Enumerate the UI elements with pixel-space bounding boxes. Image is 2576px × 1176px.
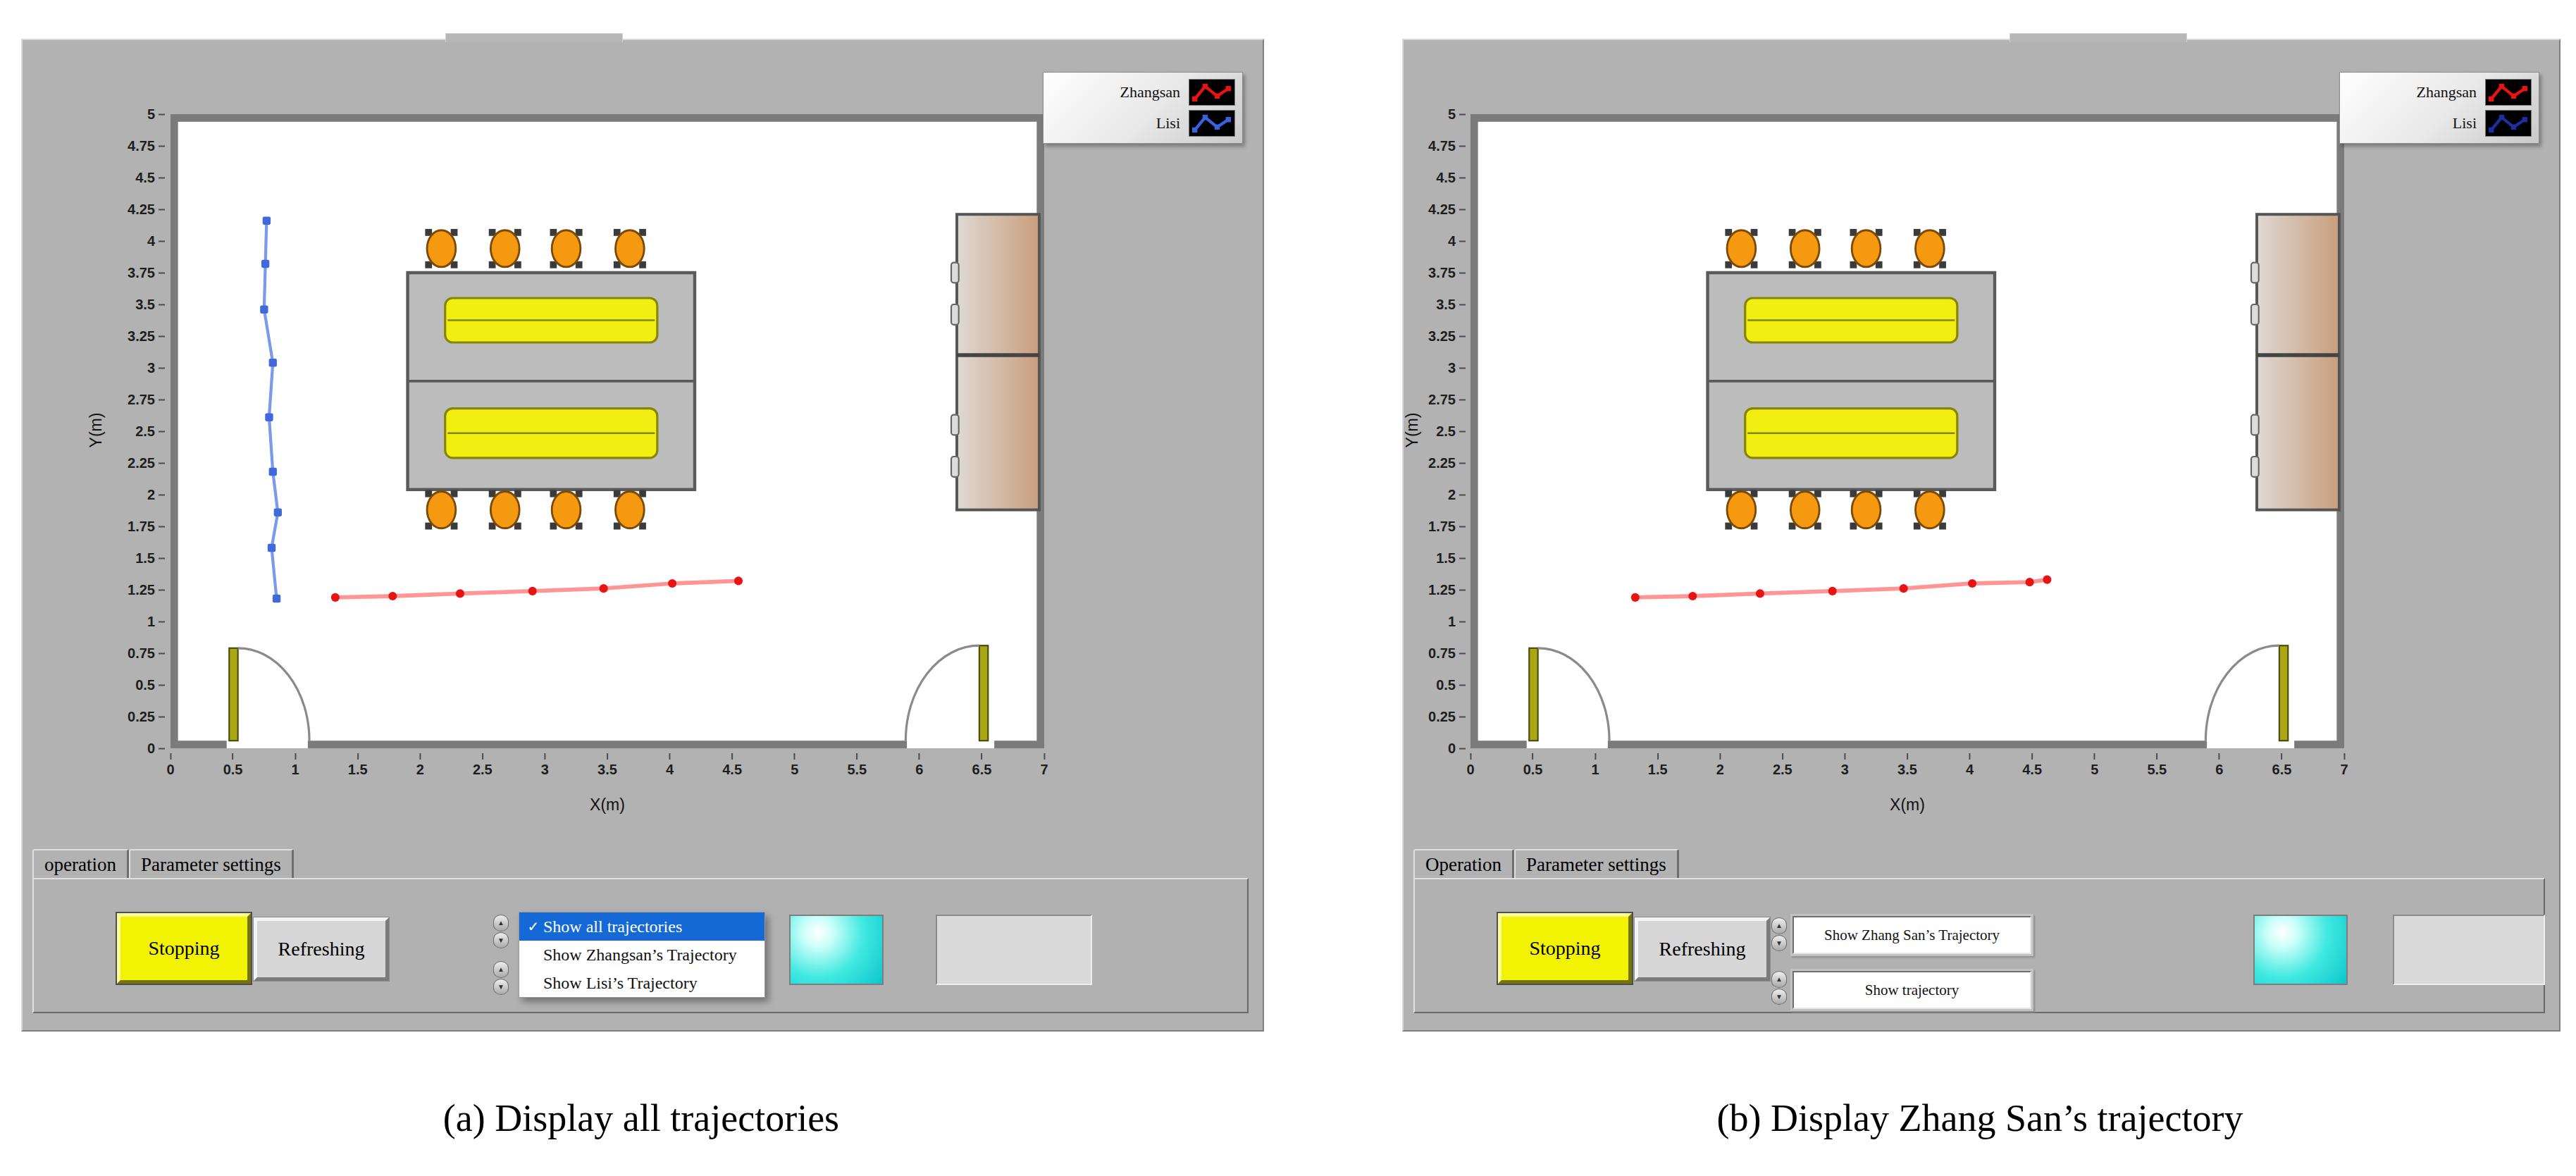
y-tick: 5 — [116, 106, 165, 123]
tab-operation[interactable]: operation — [32, 849, 129, 879]
menu-item-show-zhangsan-trajectory[interactable]: Show Zhangsan’s Trajectory — [519, 941, 764, 969]
x-tick: 6 — [2215, 753, 2223, 778]
x-tick: 1.5 — [1648, 753, 1668, 778]
y-tick: 1.75 — [1416, 519, 1466, 535]
figure-page: Y(m) 00.250.50.7511.251.51.7522.252.52.7… — [0, 0, 2576, 1176]
y-tick: 4 — [116, 233, 165, 249]
y-tick: 3.25 — [116, 328, 165, 345]
x-tick: 3.5 — [1897, 753, 1917, 778]
y-tick: 0.25 — [116, 709, 165, 725]
y-tick: 3.75 — [116, 265, 165, 281]
legend-label: Zhangsan — [1120, 83, 1180, 101]
value-display-box — [2393, 915, 2545, 985]
tab-parameter-settings[interactable]: Parameter settings — [129, 849, 294, 879]
y-tick: 0.5 — [116, 677, 165, 693]
x-tick: 0.5 — [223, 753, 243, 778]
trajectory-icon — [1189, 110, 1235, 137]
x-tick: 7 — [2340, 753, 2348, 778]
caption-a: (a) Display all trajectories — [21, 1096, 1261, 1140]
y-tick: 2.5 — [1416, 423, 1466, 440]
y-tick: 3.75 — [1416, 265, 1466, 281]
y-tick: 1 — [1416, 614, 1466, 630]
trajectory-spinner-1[interactable]: ▲ ▼ — [1771, 917, 1787, 951]
x-tick: 6.5 — [972, 753, 992, 778]
legend-item-zhangsan[interactable]: Zhangsan — [1051, 77, 1235, 108]
window-notch — [445, 33, 623, 42]
x-tick: 0 — [166, 753, 174, 778]
x-tick: 1.5 — [348, 753, 368, 778]
y-tick: 2 — [116, 487, 165, 503]
increment-arrow-icon[interactable]: ▲ — [493, 915, 509, 931]
tab-strip: Operation Parameter settings — [1413, 849, 1679, 879]
trajectory-icon — [2485, 110, 2532, 137]
x-axis-ticks: 00.511.522.533.544.555.566.57 — [171, 753, 1044, 796]
y-tick: 2.25 — [116, 455, 165, 471]
x-tick: 0.5 — [1523, 753, 1543, 778]
y-tick: 1.5 — [1416, 550, 1466, 567]
y-tick: 2.75 — [1416, 392, 1466, 408]
check-icon: ✓ — [524, 918, 543, 935]
x-tick: 1 — [292, 753, 299, 778]
x-tick: 4.5 — [722, 753, 742, 778]
y-tick: 3 — [116, 360, 165, 376]
tab-parameter-settings[interactable]: Parameter settings — [1514, 849, 1679, 879]
y-tick: 3.5 — [1416, 297, 1466, 313]
y-tick: 4 — [1416, 233, 1466, 249]
x-tick: 2.5 — [473, 753, 493, 778]
plot-legend: Zhangsan Lisi — [2339, 72, 2539, 144]
decrement-arrow-icon[interactable]: ▼ — [1771, 935, 1787, 952]
y-tick: 4.5 — [1416, 170, 1466, 186]
y-tick: 0.5 — [1416, 677, 1466, 693]
y-tick: 1.75 — [116, 519, 165, 535]
plot-legend: Zhangsan Lisi — [1043, 72, 1243, 144]
y-tick: 4.75 — [1416, 138, 1466, 154]
caption-b: (b) Display Zhang San’s trajectory — [1402, 1096, 2558, 1140]
y-tick: 4.25 — [1416, 202, 1466, 218]
legend-label: Lisi — [2453, 114, 2477, 132]
legend-item-lisi[interactable]: Lisi — [2347, 108, 2532, 139]
x-tick: 6 — [915, 753, 923, 778]
x-tick: 4 — [1966, 753, 1974, 778]
stopping-button[interactable]: Stopping — [1498, 913, 1632, 984]
trajectory-spinner-1[interactable]: ▲ ▼ — [493, 915, 509, 948]
trajectory-dropdown-1[interactable]: Show Zhang San’s Trajectory — [1792, 916, 2031, 954]
y-tick: 1.25 — [116, 582, 165, 598]
y-tick: 0.75 — [1416, 645, 1466, 662]
y-axis-ticks: 00.250.50.7511.251.51.7522.252.52.7533.2… — [1416, 114, 1466, 748]
decrement-arrow-icon[interactable]: ▼ — [1771, 989, 1787, 1005]
window-notch — [2010, 33, 2187, 42]
x-tick: 4 — [666, 753, 674, 778]
decrement-arrow-icon[interactable]: ▼ — [493, 932, 509, 949]
y-axis-ticks: 00.250.50.7511.251.51.7522.252.52.7533.2… — [116, 114, 165, 748]
x-tick: 3 — [1841, 753, 1849, 778]
y-tick: 1 — [116, 614, 165, 630]
y-tick: 2.75 — [116, 392, 165, 408]
y-tick: 3.25 — [1416, 328, 1466, 345]
x-tick: 3 — [541, 753, 549, 778]
increment-arrow-icon[interactable]: ▲ — [1771, 971, 1787, 988]
front-panel-b: Y(m) 00.250.50.7511.251.51.7522.252.52.7… — [1402, 39, 2560, 1032]
menu-item-show-all-trajectories[interactable]: ✓ Show all trajectories — [519, 912, 764, 941]
legend-item-lisi[interactable]: Lisi — [1051, 108, 1235, 139]
value-display-box — [936, 915, 1092, 985]
tab-content-panel: Stopping Refreshing ▲ ▼ ▲ ▼ ✓ Show all t… — [32, 878, 1249, 1013]
x-tick: 0 — [1466, 753, 1474, 778]
tab-content-panel: Stopping Refreshing ▲ ▼ Show Zhang San’s… — [1413, 878, 2545, 1013]
x-tick: 6.5 — [2272, 753, 2292, 778]
front-panel-a: Y(m) 00.250.50.7511.251.51.7522.252.52.7… — [21, 39, 1264, 1032]
trajectory-icon — [2485, 79, 2532, 106]
y-tick: 4.75 — [116, 138, 165, 154]
x-tick: 5 — [791, 753, 798, 778]
stopping-button[interactable]: Stopping — [117, 913, 251, 984]
menu-item-show-lisi-trajectory[interactable]: Show Lisi’s Trajectory — [519, 969, 764, 997]
y-tick: 1.5 — [116, 550, 165, 567]
x-axis-ticks: 00.511.522.533.544.555.566.57 — [1470, 753, 2344, 796]
room-map-plot — [171, 114, 1044, 748]
legend-label: Zhangsan — [2416, 83, 2477, 101]
y-tick: 2 — [1416, 487, 1466, 503]
trajectory-spinner-2[interactable]: ▲ ▼ — [493, 961, 509, 995]
legend-item-zhangsan[interactable]: Zhangsan — [2347, 77, 2532, 108]
room-map-plot — [1470, 114, 2344, 748]
x-tick: 7 — [1040, 753, 1048, 778]
y-tick: 0.75 — [116, 645, 165, 662]
y-tick: 5 — [1416, 106, 1466, 123]
y-tick: 3 — [1416, 360, 1466, 376]
x-tick: 3.5 — [597, 753, 617, 778]
x-tick: 2 — [416, 753, 424, 778]
status-led-indicator — [2253, 915, 2348, 985]
y-tick: 4.25 — [116, 202, 165, 218]
y-tick: 2.5 — [116, 423, 165, 440]
status-led-indicator — [789, 915, 884, 985]
tab-operation[interactable]: Operation — [1413, 849, 1514, 879]
refreshing-button[interactable]: Refreshing — [254, 917, 389, 981]
y-tick: 0 — [116, 741, 165, 757]
x-axis-label: X(m) — [1470, 796, 2344, 815]
trajectory-icon — [1189, 79, 1235, 106]
x-tick: 4.5 — [2022, 753, 2042, 778]
increment-arrow-icon[interactable]: ▲ — [493, 961, 509, 978]
menu-item-label: Show all trajectories — [543, 917, 682, 936]
tab-strip: operation Parameter settings — [32, 849, 294, 879]
trajectory-menu: ✓ Show all trajectories Show Zhangsan’s … — [519, 912, 765, 998]
x-tick: 1 — [1592, 753, 1599, 778]
trajectory-spinner-2[interactable]: ▲ ▼ — [1771, 971, 1787, 1005]
y-tick: 4.5 — [116, 170, 165, 186]
y-tick: 2.25 — [1416, 455, 1466, 471]
increment-arrow-icon[interactable]: ▲ — [1771, 917, 1787, 934]
x-tick: 2.5 — [1773, 753, 1792, 778]
y-tick: 3.5 — [116, 297, 165, 313]
x-tick: 5.5 — [2147, 753, 2167, 778]
legend-label: Lisi — [1156, 114, 1180, 132]
trajectory-dropdown-2[interactable]: Show trajectory — [1792, 971, 2031, 1009]
menu-item-label: Show Lisi’s Trajectory — [543, 974, 698, 993]
decrement-arrow-icon[interactable]: ▼ — [493, 979, 509, 996]
x-tick: 2 — [1716, 753, 1724, 778]
x-tick: 5 — [2091, 753, 2098, 778]
y-tick: 0 — [1416, 741, 1466, 757]
y-tick: 0.25 — [1416, 709, 1466, 725]
y-tick: 1.25 — [1416, 582, 1466, 598]
refreshing-button[interactable]: Refreshing — [1635, 917, 1770, 981]
y-axis-label: Y(m) — [87, 413, 106, 448]
x-axis-label: X(m) — [171, 796, 1044, 815]
x-tick: 5.5 — [847, 753, 867, 778]
menu-item-label: Show Zhangsan’s Trajectory — [543, 946, 737, 965]
